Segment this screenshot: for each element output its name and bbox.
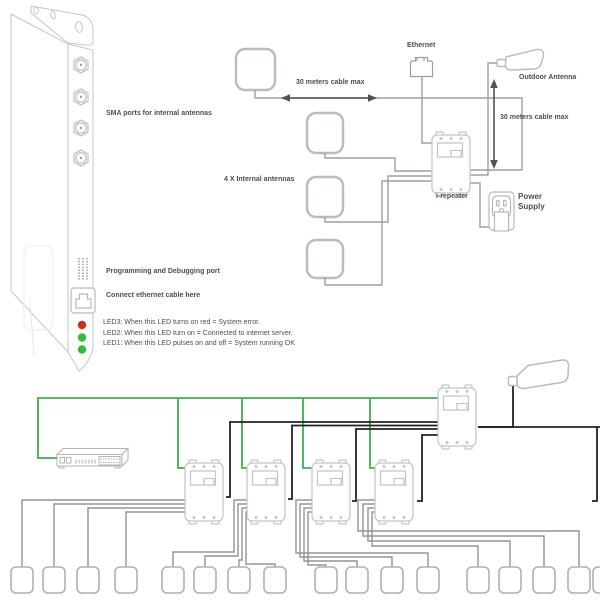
- ceiling-antenna: [315, 567, 337, 593]
- sub-repeater-box: [375, 460, 413, 524]
- sma-port-icon: [74, 120, 88, 136]
- installation-diagram: SMA ports for internal antennas Programm…: [0, 0, 600, 600]
- sub-repeater-box: [185, 460, 223, 524]
- sma-port-icon: [74, 57, 88, 73]
- ceiling-antenna: [194, 567, 216, 593]
- ethernet-label: Ethernet: [407, 42, 435, 49]
- led2-label: LED2: When this LED turn on = Connected …: [103, 330, 293, 337]
- led3-indicator: [78, 321, 86, 329]
- ethernet-jack-icon: [71, 288, 95, 313]
- ceiling-antenna: [228, 567, 250, 593]
- internal-antenna: [236, 49, 275, 90]
- main-repeater-box: [438, 385, 476, 449]
- antenna-feed-wires: [22, 500, 579, 567]
- ceiling-antenna: [417, 567, 439, 593]
- measure-arrow-horizontal: [281, 94, 377, 102]
- ceiling-antenna: [593, 567, 600, 593]
- power-supply-label-line1: Power: [518, 192, 542, 201]
- antenna-cables: [255, 63, 522, 285]
- ceiling-antennas: [11, 567, 600, 593]
- ethernet-cable: [422, 77, 433, 143]
- led1-indicator: [78, 345, 86, 353]
- ceiling-antenna: [568, 567, 590, 593]
- led1-label: LED1: When this LED pulses on and off = …: [103, 340, 295, 347]
- horizontal-cable-label: 30 meters cable max: [296, 79, 365, 86]
- power-supply-label-line2: Supply: [518, 202, 545, 211]
- ceiling-antenna: [162, 567, 184, 593]
- sma-port-icon: [74, 150, 88, 166]
- ceiling-antenna: [11, 567, 33, 593]
- i-repeater-label: i-repeater: [436, 193, 468, 200]
- sub-repeater-box: [247, 460, 285, 524]
- programming-port-label: Programming and Debugging port: [106, 268, 220, 275]
- network-switch: [57, 449, 128, 469]
- outdoor-antenna-cable: [469, 63, 497, 175]
- internal-antennas-label: 4 X Internal antennas: [224, 176, 294, 183]
- ceiling-antenna: [467, 567, 489, 593]
- ethernet-plug-icon: [411, 58, 433, 77]
- diagram-artwork: [0, 0, 600, 600]
- led3-label: LED3: When this LED turns on red = Syste…: [103, 319, 260, 326]
- ceiling-antenna: [264, 567, 286, 593]
- ceiling-antenna: [346, 567, 368, 593]
- ceiling-antenna: [533, 567, 555, 593]
- ceiling-antenna: [499, 567, 521, 593]
- power-adapter: [495, 212, 509, 231]
- vertical-cable-label: 30 meters cable max: [500, 114, 569, 121]
- internal-antenna: [307, 240, 343, 278]
- led2-indicator: [78, 333, 86, 341]
- outdoor-antenna-icon: [497, 49, 544, 70]
- measure-arrow-vertical: [490, 79, 498, 169]
- sma-ports-label: SMA ports for internal antennas: [106, 110, 212, 117]
- outdoor-antenna-label: Outdoor Antenna: [519, 74, 576, 81]
- internal-antenna: [307, 177, 343, 217]
- ceiling-antenna: [43, 567, 65, 593]
- i-repeater-box: [432, 132, 470, 196]
- ceiling-antenna: [381, 567, 403, 593]
- internal-antenna: [307, 113, 343, 153]
- power-outlet-icon: [489, 192, 514, 231]
- enclosure-side-face: [11, 14, 68, 352]
- outdoor-antenna-icon: [509, 360, 569, 389]
- sma-port-icon: [74, 89, 88, 105]
- ceiling-antenna: [77, 567, 99, 593]
- ethernet-port-label: Connect ethernet cable here: [106, 292, 200, 299]
- ceiling-antenna: [115, 567, 137, 593]
- sub-repeater-box: [312, 460, 350, 524]
